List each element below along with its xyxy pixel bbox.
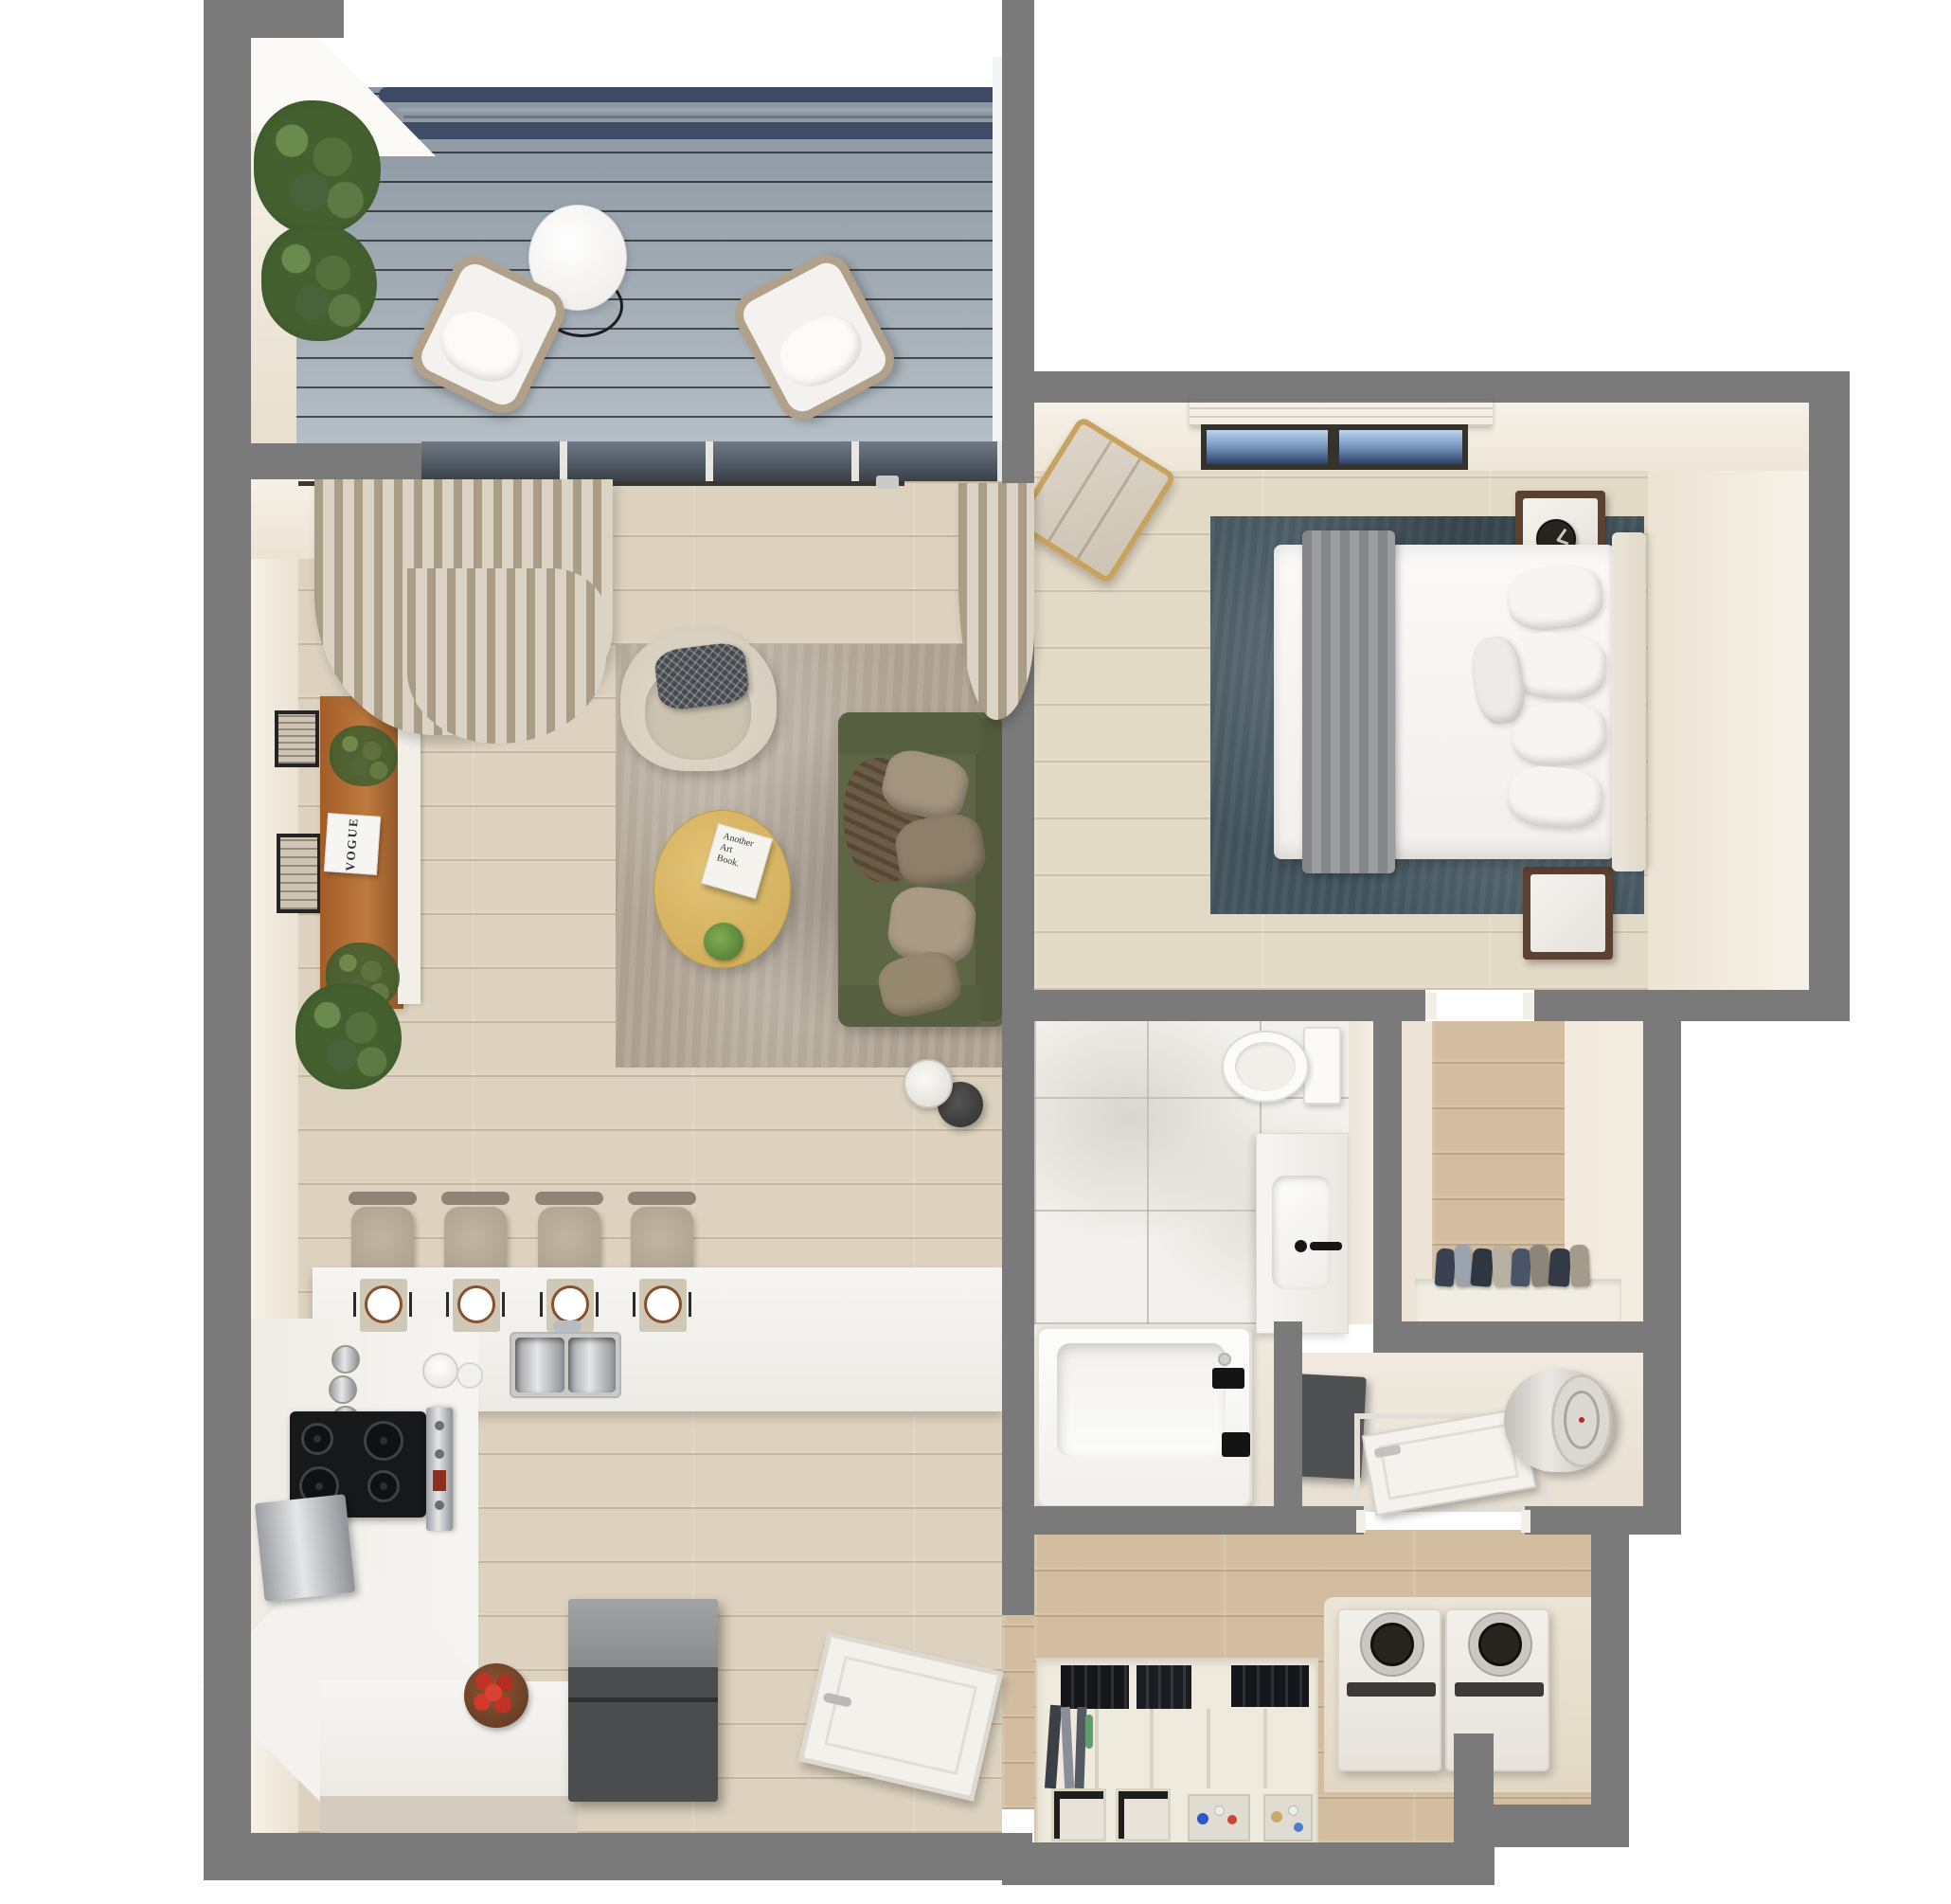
toilet-seat xyxy=(1235,1042,1296,1091)
tub-drain-icon xyxy=(1218,1353,1231,1366)
sink-basin-left xyxy=(515,1338,564,1392)
fork-icon xyxy=(353,1292,356,1317)
oven-knob-2 xyxy=(435,1449,444,1459)
washer-control-panel xyxy=(1347,1682,1436,1697)
patio-chair-right-cushion xyxy=(769,304,872,399)
spice-jar-2 xyxy=(329,1375,357,1404)
garment-4 xyxy=(1491,1244,1512,1286)
dryer-lid xyxy=(1470,1614,1530,1675)
laundry-shelving xyxy=(1036,1658,1318,1845)
wall-laundry-bottom-left xyxy=(1002,1842,1495,1885)
green-handle-item xyxy=(1085,1715,1093,1749)
patio-chair-left-cushion xyxy=(431,300,533,393)
sofa-armrest-top xyxy=(838,712,980,754)
refrigerator-gap xyxy=(568,1697,718,1702)
bed-pillow-3 xyxy=(1510,700,1607,767)
knife-icon xyxy=(409,1292,412,1317)
shelf-divider-2 xyxy=(1150,1709,1154,1788)
deck-slat-line-2 xyxy=(403,116,1002,118)
oven-front xyxy=(426,1408,453,1531)
cutting-board-1 xyxy=(1045,1705,1062,1789)
wall-closet-bottom xyxy=(1373,1321,1681,1353)
wall-balcony-living-divider xyxy=(204,443,421,479)
wall-kitchen-bottom xyxy=(204,1833,1032,1880)
fork-icon xyxy=(540,1292,543,1317)
nightstand-bottom-marble xyxy=(1530,874,1605,952)
floor-plant xyxy=(295,983,402,1089)
wall-bath-closet-divider xyxy=(1373,990,1402,1321)
vanity-drain-icon xyxy=(1295,1240,1307,1252)
fork-icon xyxy=(446,1292,449,1317)
tub-handle-icon xyxy=(1222,1432,1250,1457)
balcony-shrub-1 xyxy=(254,100,381,235)
bedroom-door-jamb-1 xyxy=(1425,993,1437,1019)
bedroom-window-glass xyxy=(1201,424,1468,470)
toilet-tank xyxy=(1303,1027,1341,1105)
magazine: VOGUE xyxy=(324,813,381,875)
utility-door-panel xyxy=(1379,1423,1519,1500)
vanity-faucet-icon xyxy=(1310,1242,1342,1250)
wall-bath-utility-divider xyxy=(1274,1321,1302,1530)
bottle-white xyxy=(1214,1805,1225,1816)
place-setting-1 xyxy=(360,1279,407,1332)
detergent-bin-1 xyxy=(1188,1794,1250,1841)
sideboard-front xyxy=(398,703,421,1004)
shelf-divider-3 xyxy=(1207,1709,1210,1788)
faucet-icon xyxy=(553,1320,582,1332)
plate xyxy=(457,1285,495,1323)
curtain-rod-bracket xyxy=(876,476,899,489)
spice-jar-1 xyxy=(331,1345,360,1374)
valet-bench-seam-2 xyxy=(1077,458,1141,560)
fruit-bowl xyxy=(464,1663,528,1728)
sideboard-plant-1 xyxy=(330,726,398,786)
utility-door-jamb-1 xyxy=(1356,1510,1366,1533)
file-box-2 xyxy=(1137,1665,1191,1709)
refrigerator-top xyxy=(568,1599,718,1667)
vanity xyxy=(1256,1133,1349,1334)
floorplan-render: VOGUE Another Art Book. xyxy=(0,0,1951,1904)
burner-4 xyxy=(367,1470,400,1502)
art-frame-2 xyxy=(277,834,321,913)
bar-stool-4-back xyxy=(628,1192,696,1205)
bedroom-right-wall-face xyxy=(1648,471,1809,990)
plate xyxy=(551,1285,589,1323)
headboard xyxy=(1612,532,1646,871)
bathroom-right-face xyxy=(1349,1021,1373,1324)
art-frame-1 xyxy=(275,710,319,767)
water-heater xyxy=(1504,1370,1616,1472)
nightstand-bottom xyxy=(1523,867,1613,960)
refrigerator xyxy=(568,1599,718,1802)
plate xyxy=(644,1285,682,1323)
sink-basin-right xyxy=(568,1338,616,1392)
place-setting-2 xyxy=(453,1279,500,1332)
bar-stool-2-back xyxy=(441,1192,510,1205)
knife-icon xyxy=(689,1292,691,1317)
detergent-bin-2 xyxy=(1263,1794,1313,1841)
dish-stack xyxy=(422,1353,458,1389)
burner-2 xyxy=(364,1421,403,1461)
storage-cube-1 xyxy=(1051,1788,1106,1841)
magazine-title: VOGUE xyxy=(343,817,362,871)
cabinet-face-bottom xyxy=(320,1796,578,1833)
wall-laundry-right xyxy=(1591,1530,1629,1847)
file-box-3 xyxy=(1231,1665,1309,1707)
garment-5 xyxy=(1511,1248,1531,1287)
wall-balcony-top-stub xyxy=(204,0,344,38)
file-box-1 xyxy=(1061,1665,1129,1709)
bottle-white-2 xyxy=(1288,1805,1298,1816)
storage-cube-2 xyxy=(1116,1788,1171,1841)
bathtub xyxy=(1036,1326,1252,1508)
wall-laundry-bottom-right xyxy=(1454,1805,1629,1847)
washer xyxy=(1337,1608,1441,1771)
tub-faucet-icon xyxy=(1212,1368,1244,1389)
wall-bedroom-right xyxy=(1809,371,1850,1021)
shelf-divider-1 xyxy=(1095,1709,1099,1788)
garment-3 xyxy=(1470,1248,1494,1287)
bar-stool-1-back xyxy=(349,1192,417,1205)
garment-1 xyxy=(1435,1248,1457,1286)
plate xyxy=(365,1285,403,1323)
table-lamp xyxy=(904,1059,953,1108)
vanity-basin xyxy=(1272,1176,1331,1289)
window-mullion-icon xyxy=(1328,430,1339,464)
entry-door-panel xyxy=(824,1656,977,1775)
water-heater-indicator xyxy=(1579,1417,1584,1423)
bed-gray-drape xyxy=(1302,530,1395,873)
wall-bath-bottom xyxy=(1002,1506,1364,1535)
fork-icon xyxy=(633,1292,635,1317)
deck-slat-2 xyxy=(392,122,1002,139)
kitchen-sink xyxy=(510,1332,621,1398)
wall-laundry-step-stub xyxy=(1454,1733,1494,1809)
wall-bedroom-bottom-right xyxy=(1534,990,1850,1021)
knife-icon xyxy=(502,1292,505,1317)
knife-icon xyxy=(596,1292,599,1317)
wall-left-outer xyxy=(204,0,251,1880)
burner-1 xyxy=(301,1423,333,1455)
toilet-bowl xyxy=(1222,1031,1309,1103)
place-setting-4 xyxy=(639,1279,687,1332)
bottle-tan xyxy=(1271,1811,1282,1823)
garment-8 xyxy=(1569,1245,1590,1287)
bedroom-window-valance xyxy=(1190,396,1493,426)
armchair xyxy=(620,627,777,771)
glass-bowl xyxy=(456,1362,483,1389)
bottle-blue-2 xyxy=(1294,1823,1303,1832)
wall-closet-right xyxy=(1643,990,1681,1530)
coffee-table-plant xyxy=(704,923,743,961)
sofa xyxy=(838,712,1006,1027)
deck-right-edge xyxy=(993,57,1002,447)
bottle-red-cap xyxy=(1227,1815,1237,1824)
garment-7 xyxy=(1548,1248,1572,1286)
apple-5 xyxy=(485,1684,502,1701)
water-heater-face xyxy=(1551,1374,1612,1467)
deck-slat-1 xyxy=(379,87,1002,102)
shelf-divider-4 xyxy=(1263,1709,1267,1788)
wall-bedroom-bottom-left xyxy=(1034,990,1425,1021)
metal-panel xyxy=(255,1494,355,1601)
oven-knob-3 xyxy=(435,1500,444,1510)
bedroom-door-jamb-2 xyxy=(1523,993,1534,1019)
balcony-shrub-2 xyxy=(261,224,377,341)
bottle-blue xyxy=(1197,1813,1208,1824)
cutting-board-2 xyxy=(1061,1707,1074,1788)
washer-lid xyxy=(1362,1614,1423,1675)
toilet xyxy=(1222,1025,1343,1110)
oven-knob-1 xyxy=(435,1421,444,1430)
utility-door-jamb-2 xyxy=(1521,1510,1530,1533)
oven-display xyxy=(433,1470,446,1491)
valet-bench-seam-1 xyxy=(1047,440,1112,542)
deck-slat-line-1 xyxy=(398,108,1002,112)
sliding-glass-door xyxy=(421,441,1002,481)
balcony-railing-edge xyxy=(251,28,1002,87)
entry-threshold xyxy=(1002,1615,1034,1809)
wall-central xyxy=(1002,0,1034,1615)
bathtub-basin xyxy=(1057,1343,1226,1457)
bar-stool-3-back xyxy=(535,1192,603,1205)
dryer-control-panel xyxy=(1455,1682,1544,1697)
